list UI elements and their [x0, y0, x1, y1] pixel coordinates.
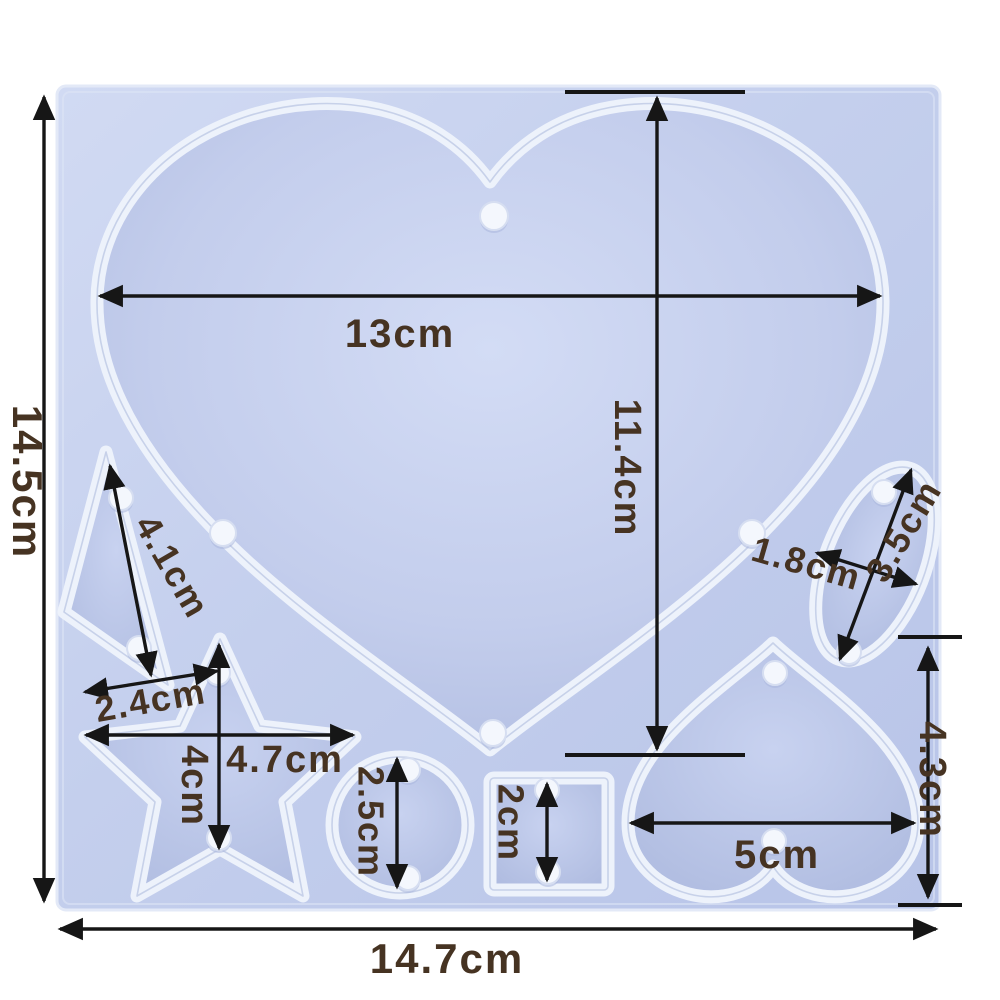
dim-label-overall-height: 14.5cm: [4, 405, 51, 559]
dim-label-large-heart-width: 13cm: [345, 312, 455, 356]
mold-diagram-svg: 14.5cm 14.7cm 13cm 11.4cm 4.1cm 2.4cm 4.…: [0, 0, 1000, 1000]
peg: [210, 520, 236, 549]
peg: [396, 758, 420, 785]
peg: [396, 866, 420, 893]
dim-label-large-heart-height: 11.4cm: [606, 399, 648, 538]
dim-label-square-size: 2cm: [490, 784, 531, 862]
dim-label-circle-diameter: 2.5cm: [350, 766, 391, 878]
dim-label-small-heart-width: 5cm: [734, 833, 820, 877]
dim-label-overall-width: 14.7cm: [370, 935, 524, 982]
peg: [480, 720, 506, 749]
peg: [763, 661, 787, 688]
peg: [109, 486, 133, 513]
dim-label-star-width: 4.7cm: [226, 739, 344, 781]
mold-dimension-diagram: 14.5cm 14.7cm 13cm 11.4cm 4.1cm 2.4cm 4.…: [0, 0, 1000, 1000]
peg: [480, 202, 508, 233]
dim-label-small-heart-height: 4.3cm: [911, 721, 953, 839]
dim-label-star-height: 4cm: [173, 745, 215, 827]
peg: [872, 480, 896, 507]
